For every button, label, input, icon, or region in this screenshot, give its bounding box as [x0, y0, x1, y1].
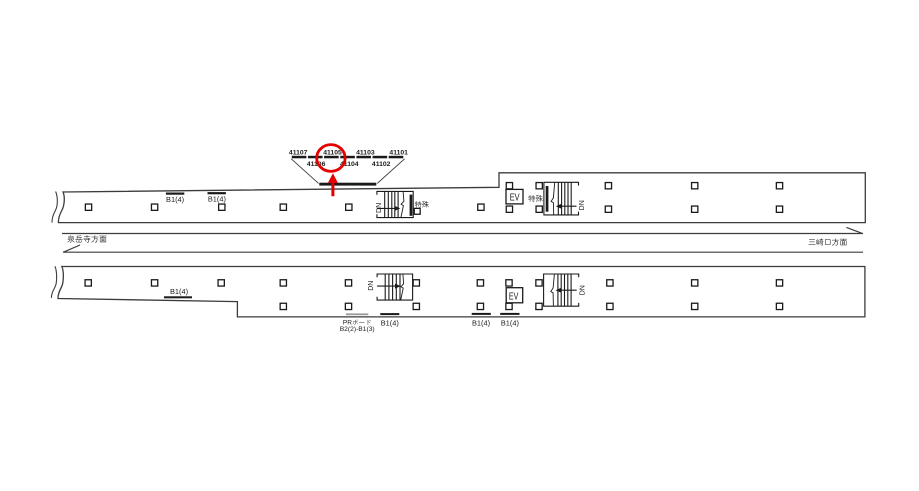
- svg-text:41102: 41102: [372, 161, 391, 168]
- svg-text:41103: 41103: [356, 149, 375, 156]
- svg-text:B1(4): B1(4): [170, 287, 188, 296]
- svg-text:B1(4): B1(4): [166, 195, 184, 204]
- svg-text:DN: DN: [368, 281, 375, 291]
- svg-text:B1(4): B1(4): [501, 318, 519, 327]
- svg-text:DN: DN: [376, 203, 383, 213]
- svg-text:B2(2)-B1(3): B2(2)-B1(3): [340, 326, 375, 333]
- svg-text:DN: DN: [579, 200, 586, 210]
- svg-text:41101: 41101: [389, 149, 408, 156]
- svg-text:B1(4): B1(4): [381, 319, 399, 328]
- svg-text:B1(4): B1(4): [208, 195, 226, 204]
- svg-text:EV: EV: [510, 191, 520, 203]
- svg-text:EV: EV: [509, 292, 519, 303]
- svg-text:DN: DN: [580, 285, 587, 295]
- svg-text:41105: 41105: [323, 149, 342, 156]
- svg-text:B1(4): B1(4): [472, 318, 490, 327]
- svg-text:41107: 41107: [289, 149, 308, 156]
